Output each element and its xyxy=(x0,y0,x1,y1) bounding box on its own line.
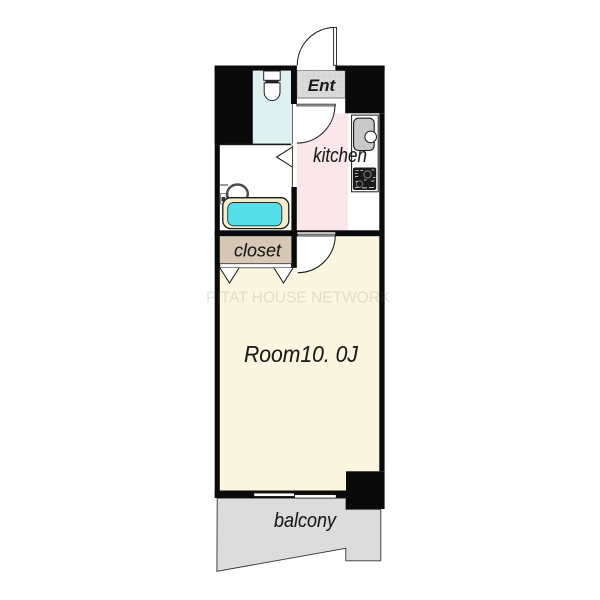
svg-text:Room10. 0J: Room10. 0J xyxy=(244,341,359,367)
svg-text:Ent: Ent xyxy=(308,76,337,95)
svg-text:balcony: balcony xyxy=(274,510,337,532)
svg-text:kitchen: kitchen xyxy=(313,144,367,167)
svg-text:PITAT HOUSE NETWORK: PITAT HOUSE NETWORK xyxy=(206,290,391,307)
svg-text:closet: closet xyxy=(234,241,282,261)
